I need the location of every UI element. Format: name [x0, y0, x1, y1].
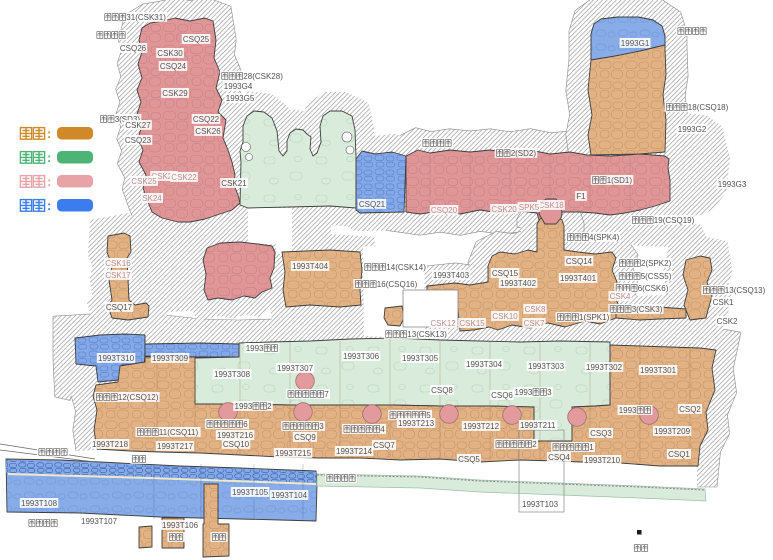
svg-text:1993T308: 1993T308: [214, 370, 251, 379]
svg-text:2(SD2): 2(SD2): [511, 149, 537, 158]
svg-text:1993G2: 1993G2: [678, 125, 707, 134]
svg-text:1993T104: 1993T104: [271, 491, 308, 500]
svg-text:CSQ26: CSQ26: [120, 44, 147, 53]
svg-text:1993T210: 1993T210: [584, 456, 621, 465]
svg-text:1(SD1): 1(SD1): [607, 176, 633, 185]
svg-text:1993G3: 1993G3: [718, 180, 747, 189]
svg-text:1993T215: 1993T215: [275, 449, 312, 458]
svg-text:CSK21: CSK21: [221, 179, 247, 188]
svg-text:14(CSK14): 14(CSK14): [386, 263, 426, 272]
svg-text:CSQ15: CSQ15: [492, 269, 519, 278]
svg-text:1993T306: 1993T306: [343, 352, 380, 361]
svg-text:CSQ20: CSQ20: [431, 206, 458, 215]
svg-text:1993G5: 1993G5: [226, 94, 255, 103]
svg-text:CSK26: CSK26: [195, 127, 221, 136]
svg-text:1993: 1993: [235, 402, 253, 411]
svg-text:2(SPK2): 2(SPK2): [641, 259, 672, 268]
svg-text:SK24: SK24: [142, 194, 162, 203]
svg-text:12(CSQ12): 12(CSQ12): [118, 393, 159, 402]
svg-text:CSK4: CSK4: [610, 292, 631, 301]
svg-text:11(CSQ11): 11(CSQ11): [159, 428, 199, 437]
svg-text:1993T212: 1993T212: [463, 422, 500, 431]
svg-text:1993T401: 1993T401: [560, 274, 597, 283]
svg-text:CSK18: CSK18: [538, 201, 564, 210]
svg-text:CSK22: CSK22: [171, 173, 197, 182]
svg-text:CSK15: CSK15: [459, 319, 485, 328]
svg-text:CSK12: CSK12: [430, 319, 456, 328]
svg-text:1993T307: 1993T307: [277, 364, 314, 373]
svg-text:CSQ23: CSQ23: [125, 136, 152, 145]
svg-text:1993T107: 1993T107: [81, 517, 118, 526]
svg-text:5(CSS5): 5(CSS5): [641, 272, 672, 281]
svg-text:CSQ21: CSQ21: [359, 200, 386, 209]
svg-text:31(CSK31): 31(CSK31): [126, 13, 166, 22]
svg-text:CSQ3: CSQ3: [590, 429, 612, 438]
svg-text:1(SPK1): 1(SPK1): [579, 313, 610, 322]
svg-text::: :: [47, 174, 51, 189]
svg-text:CSQ8: CSQ8: [431, 386, 453, 395]
svg-text:4(SPK4): 4(SPK4): [589, 233, 620, 242]
svg-text:CSQ25: CSQ25: [183, 35, 210, 44]
svg-text:CSK20: CSK20: [491, 205, 517, 214]
svg-text:1993G4: 1993G4: [224, 82, 253, 91]
svg-text:1993: 1993: [246, 344, 264, 353]
svg-text:CSQ14: CSQ14: [566, 257, 593, 266]
svg-text:CSK10: CSK10: [492, 312, 518, 321]
svg-text:CSQ1: CSQ1: [668, 450, 690, 459]
svg-text:2: 2: [267, 402, 272, 411]
svg-text:1993T103: 1993T103: [522, 500, 559, 509]
svg-text:1993T310: 1993T310: [98, 354, 135, 363]
svg-text:CSQ5: CSQ5: [458, 455, 480, 464]
svg-text:CSK29: CSK29: [162, 89, 188, 98]
svg-text::: :: [47, 126, 51, 141]
svg-text:3(CSK3): 3(CSK3): [632, 305, 663, 314]
svg-text:4: 4: [380, 425, 385, 434]
svg-text:1993T106: 1993T106: [162, 521, 199, 530]
svg-text:CSK7: CSK7: [524, 319, 545, 328]
svg-text:1993T214: 1993T214: [336, 447, 373, 456]
svg-text:1993T304: 1993T304: [466, 360, 503, 369]
svg-text:18(CSQ18): 18(CSQ18): [688, 103, 729, 112]
svg-text:CSQ6: CSQ6: [491, 391, 513, 400]
svg-text:CSQ7: CSQ7: [373, 441, 395, 450]
svg-text:1993: 1993: [515, 388, 533, 397]
svg-text:19(CSQ19): 19(CSQ19): [654, 216, 695, 225]
svg-text:CSQ17: CSQ17: [106, 303, 133, 312]
svg-text:28(CSK28): 28(CSK28): [243, 72, 283, 81]
svg-text:13(CSQ13): 13(CSQ13): [725, 286, 766, 295]
svg-text:SPK5: SPK5: [519, 203, 540, 212]
svg-text:7: 7: [324, 390, 329, 399]
svg-text:CSQ9: CSQ9: [294, 433, 316, 442]
svg-text:CSK17: CSK17: [105, 271, 131, 280]
svg-text:1993T105: 1993T105: [232, 488, 269, 497]
svg-text:F1: F1: [576, 192, 586, 201]
svg-text:6(CSK6): 6(CSK6): [638, 284, 669, 293]
svg-text:1993: 1993: [619, 406, 637, 415]
svg-text:CSK2: CSK2: [717, 317, 738, 326]
svg-text:1993T213: 1993T213: [398, 419, 435, 428]
svg-text:CSK27: CSK27: [125, 121, 151, 130]
svg-text:1993T216: 1993T216: [217, 431, 254, 440]
svg-text:CSK30: CSK30: [157, 49, 183, 58]
svg-text:1993G1: 1993G1: [621, 39, 650, 48]
svg-text:CSQ2: CSQ2: [679, 405, 701, 414]
svg-text:1993T309: 1993T309: [152, 354, 189, 363]
svg-text:1993T211: 1993T211: [520, 421, 556, 430]
svg-text:CSK1: CSK1: [713, 298, 734, 307]
svg-text:1993T108: 1993T108: [21, 499, 58, 508]
svg-text:CSK25: CSK25: [131, 177, 157, 186]
svg-text:2: 2: [532, 440, 537, 449]
svg-text:13(CSK13): 13(CSK13): [407, 330, 447, 339]
svg-text:1993T209: 1993T209: [654, 427, 691, 436]
svg-text:16(CSQ16): 16(CSQ16): [377, 280, 418, 289]
svg-text:CSQ4: CSQ4: [548, 453, 570, 462]
svg-text:1993T305: 1993T305: [402, 354, 439, 363]
svg-text::: :: [47, 198, 51, 213]
svg-text:CSQ24: CSQ24: [160, 62, 187, 71]
svg-text:3: 3: [547, 388, 552, 397]
svg-text:1993T402: 1993T402: [500, 279, 537, 288]
svg-text:CSQ22: CSQ22: [193, 115, 220, 124]
svg-text:3: 3: [319, 422, 324, 431]
svg-text::: :: [47, 150, 51, 165]
svg-text:1993T301: 1993T301: [640, 366, 677, 375]
svg-text:1993T218: 1993T218: [92, 440, 129, 449]
svg-text:CSK16: CSK16: [105, 259, 131, 268]
svg-text:1993T403: 1993T403: [433, 271, 470, 280]
svg-text:6: 6: [243, 420, 248, 429]
svg-text:1993T302: 1993T302: [586, 363, 623, 372]
svg-text:CSQ10: CSQ10: [223, 440, 250, 449]
svg-text:1993T404: 1993T404: [292, 262, 329, 271]
svg-text:1993T303: 1993T303: [528, 362, 565, 371]
svg-text:CSK8: CSK8: [525, 305, 546, 314]
svg-text:1993T217: 1993T217: [157, 442, 194, 451]
svg-text:1: 1: [589, 443, 594, 452]
